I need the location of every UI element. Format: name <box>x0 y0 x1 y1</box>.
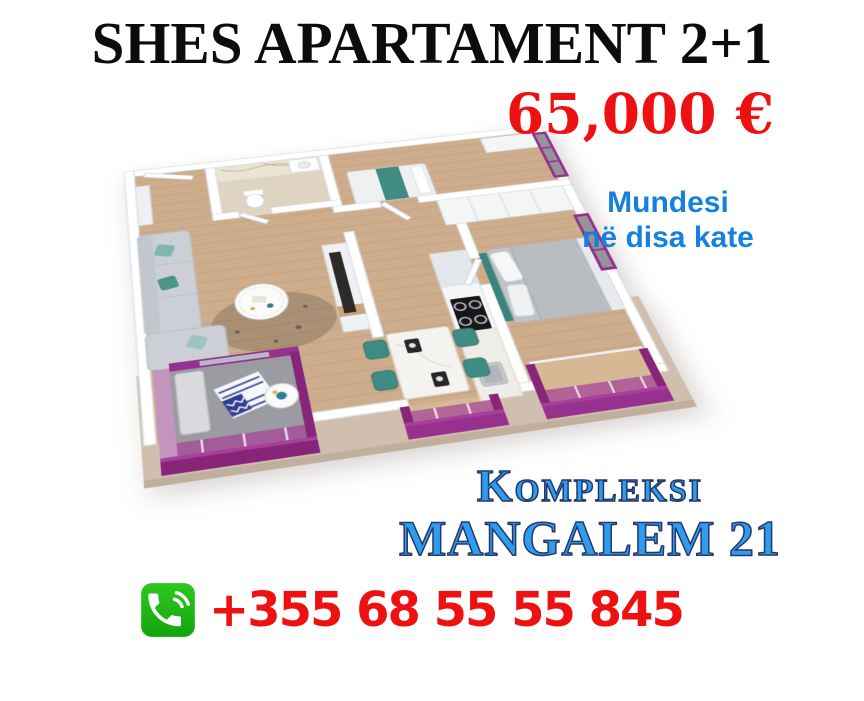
floor-plan-svg <box>116 121 702 500</box>
availability-line-1: Mundesi <box>553 186 783 221</box>
complex-line-2: MANGALEM 21 <box>380 513 800 563</box>
shoe-cabinet <box>135 185 153 225</box>
complex-name: Kompleksi MANGALEM 21 <box>380 462 800 563</box>
complex-line-1: Kompleksi <box>380 462 800 510</box>
price: 65,000 € <box>470 86 810 141</box>
phone-call-icon <box>140 582 196 638</box>
flyer: SHES APARTAMENT 2+1 <box>0 0 864 701</box>
availability-line-2: në disa kate <box>553 221 783 256</box>
availability-note: Mundesi në disa kate <box>553 186 783 255</box>
phone-number: +355 68 55 55 845 <box>209 582 683 638</box>
contact-row: +355 68 55 55 845 <box>140 582 683 638</box>
apartment-floor-plan-render <box>116 121 702 500</box>
page-title: SHES APARTAMENT 2+1 <box>0 14 864 73</box>
